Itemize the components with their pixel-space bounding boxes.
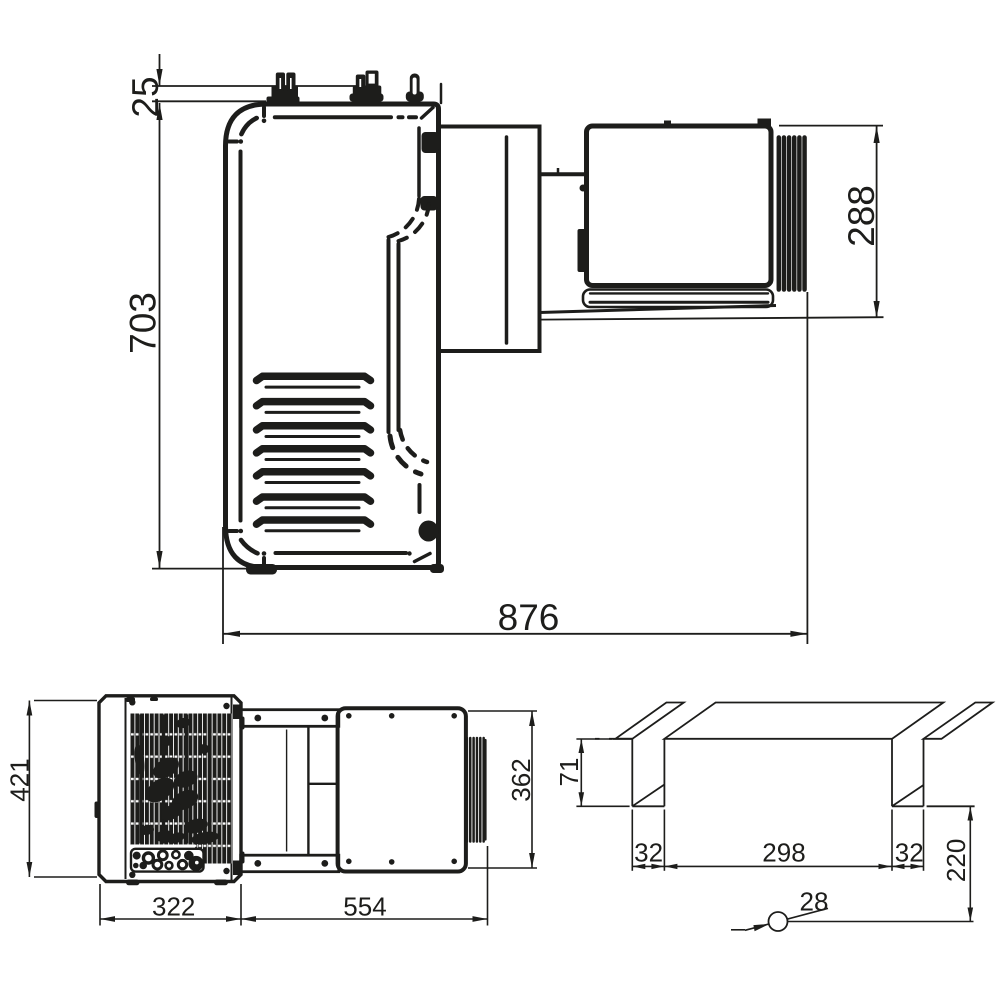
svg-text:322: 322 xyxy=(152,891,195,921)
svg-text:362: 362 xyxy=(506,758,536,801)
svg-text:220: 220 xyxy=(941,839,971,882)
svg-text:32: 32 xyxy=(634,837,663,867)
svg-text:703: 703 xyxy=(123,292,164,354)
svg-text:288: 288 xyxy=(841,185,882,247)
svg-text:28: 28 xyxy=(800,886,829,916)
svg-text:421: 421 xyxy=(4,758,34,801)
svg-text:25: 25 xyxy=(125,76,166,117)
svg-text:298: 298 xyxy=(762,837,805,867)
svg-text:554: 554 xyxy=(343,891,386,921)
svg-text:71: 71 xyxy=(554,758,584,787)
svg-text:876: 876 xyxy=(498,597,560,638)
svg-text:32: 32 xyxy=(895,837,924,867)
